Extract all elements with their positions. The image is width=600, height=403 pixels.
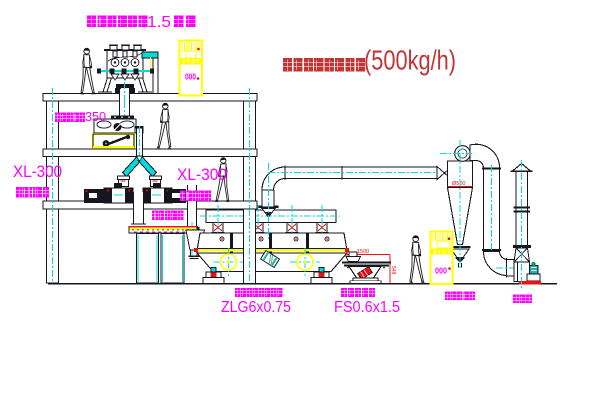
svg-text:1.5: 1.5 <box>147 14 171 31</box>
svg-text:Ø500: Ø500 <box>452 181 465 187</box>
svg-text:000: 000 <box>185 72 196 82</box>
svg-text:ZLG6x0.75: ZLG6x0.75 <box>221 299 291 316</box>
svg-text:548: 548 <box>390 266 396 275</box>
svg-text:(500kg/h): (500kg/h) <box>364 45 456 76</box>
svg-text:1500: 1500 <box>357 249 369 255</box>
svg-text:350: 350 <box>85 109 106 124</box>
svg-text:XL-300: XL-300 <box>177 165 227 184</box>
svg-text:XL-300: XL-300 <box>13 162 62 181</box>
svg-text:FS0.6x1.5: FS0.6x1.5 <box>334 299 400 316</box>
svg-text:000: 000 <box>435 266 447 276</box>
